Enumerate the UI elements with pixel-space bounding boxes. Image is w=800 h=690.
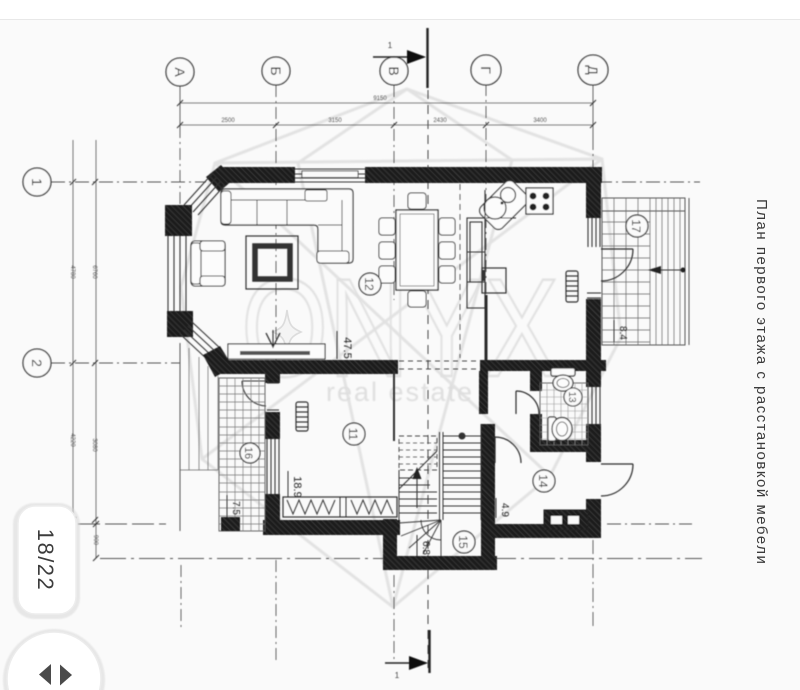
- svg-text:4220: 4220: [69, 433, 75, 447]
- svg-text:900: 900: [92, 535, 98, 546]
- svg-text:План первого этажа с расстанов: План первого этажа с расстановкой мебели: [753, 199, 770, 565]
- svg-text:13: 13: [566, 391, 577, 403]
- svg-text:3080: 3080: [91, 438, 97, 452]
- svg-text:4780: 4780: [69, 265, 75, 279]
- svg-text:real estate: real estate: [326, 377, 474, 407]
- svg-text:6760: 6760: [91, 265, 97, 279]
- svg-text:14: 14: [536, 474, 550, 488]
- svg-text:17: 17: [629, 219, 643, 233]
- svg-text:6.8: 6.8: [420, 541, 431, 555]
- svg-text:47.5: 47.5: [341, 337, 353, 358]
- svg-text:18.9: 18.9: [291, 476, 303, 497]
- svg-text:7.5: 7.5: [230, 501, 241, 515]
- svg-text:4.9: 4.9: [499, 503, 510, 517]
- svg-text:3150: 3150: [328, 118, 342, 124]
- svg-text:2500: 2500: [221, 118, 235, 124]
- svg-text:2430: 2430: [433, 118, 447, 124]
- svg-text:1: 1: [395, 671, 400, 680]
- svg-text:3400: 3400: [533, 118, 547, 124]
- svg-text:18/22: 18/22: [33, 529, 58, 592]
- svg-text:12: 12: [362, 277, 376, 291]
- svg-text:Г: Г: [478, 66, 494, 74]
- svg-text:А: А: [172, 67, 188, 77]
- svg-text:9150: 9150: [373, 96, 387, 102]
- svg-text:Б: Б: [268, 66, 284, 75]
- svg-text:2: 2: [29, 359, 45, 367]
- svg-text:В: В: [386, 66, 402, 75]
- svg-text:8.4: 8.4: [617, 326, 628, 340]
- svg-text:11: 11: [346, 428, 360, 441]
- svg-text:Д: Д: [585, 65, 601, 75]
- svg-text:1: 1: [388, 41, 393, 50]
- svg-text:16: 16: [242, 447, 254, 459]
- svg-text:1: 1: [29, 178, 45, 186]
- svg-text:15: 15: [456, 535, 470, 549]
